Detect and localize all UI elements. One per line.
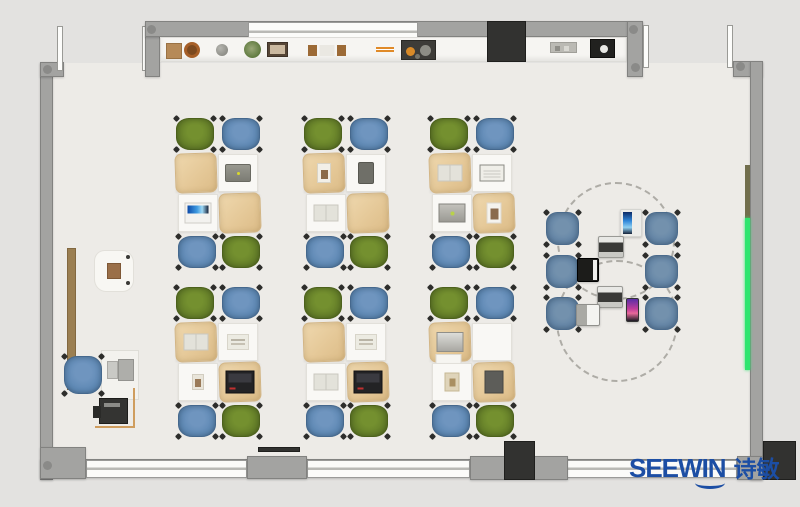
chair-leg <box>340 233 347 240</box>
student-desk <box>178 363 218 401</box>
chair-green <box>176 287 214 319</box>
desk-cover <box>302 321 345 362</box>
wall-right <box>750 61 763 480</box>
chair-leg <box>340 402 347 409</box>
counter-item-trays <box>308 45 346 56</box>
device-laptop-gray <box>598 236 624 258</box>
chair-steel <box>645 297 678 330</box>
chair-steel <box>645 255 678 288</box>
chair-blue <box>306 405 344 437</box>
student-desk <box>306 194 346 232</box>
chair-leg <box>429 402 436 409</box>
desk-cover <box>218 192 261 233</box>
chair-green <box>350 405 388 437</box>
wall-joint <box>43 461 52 470</box>
chair-blue <box>350 118 388 150</box>
student-desk <box>432 194 472 232</box>
chair-leg <box>473 315 480 322</box>
chair-steel <box>645 212 678 245</box>
chair-green <box>430 287 468 319</box>
wall-joint <box>147 25 156 34</box>
open-book-item <box>438 165 463 182</box>
tablet-gray-item <box>225 164 251 182</box>
laptop-blue-item <box>185 203 212 224</box>
student-desk <box>346 154 386 192</box>
chair-leg <box>212 402 219 409</box>
picture-item <box>487 203 502 224</box>
chair-leg <box>473 233 480 240</box>
chair-blue <box>222 118 260 150</box>
student-desk <box>472 323 512 361</box>
laptop-silver-item <box>437 332 464 352</box>
counter-item-toolbox <box>401 40 436 60</box>
wall-joint <box>629 25 638 34</box>
chair-leg <box>473 402 480 409</box>
student-desk <box>178 194 218 232</box>
door-leaf <box>643 25 649 68</box>
chair-leg <box>212 233 219 240</box>
brand-cjk: 诗敏 <box>734 456 780 482</box>
chair-leg <box>347 315 354 322</box>
chair-leg <box>219 233 226 240</box>
chair-steel <box>546 297 579 330</box>
student-desk <box>304 154 344 192</box>
chair-leg <box>347 402 354 409</box>
bag-item <box>445 373 460 392</box>
chair-blue <box>432 236 470 268</box>
chair-green <box>350 236 388 268</box>
wall-board-green <box>745 218 750 370</box>
wall-joint <box>43 65 52 74</box>
desk-cluster <box>304 287 388 437</box>
chair-leg <box>219 146 226 153</box>
papers-item <box>355 334 377 350</box>
chair-leg <box>347 233 354 240</box>
chair-leg <box>303 233 310 240</box>
papers-item <box>227 334 249 350</box>
student-desk <box>176 323 216 361</box>
chair-blue <box>432 405 470 437</box>
wall-board-olive <box>745 165 750 218</box>
counter-item-bars <box>376 47 394 52</box>
chair-leg <box>219 402 226 409</box>
window-bottom-1 <box>86 460 247 478</box>
desk-cluster <box>304 118 388 268</box>
chair-leg <box>466 402 473 409</box>
chair-steel <box>546 212 579 245</box>
chair-green <box>476 236 514 268</box>
chair-green <box>222 405 260 437</box>
counter-item-basket <box>166 42 202 58</box>
floor-plan: SEEWIN诗敏 <box>0 0 800 507</box>
student-desk <box>472 154 512 192</box>
wall-joint <box>736 62 745 71</box>
chair-blue <box>476 118 514 150</box>
student-desk <box>176 154 216 192</box>
laptop-gray-item <box>439 204 466 223</box>
chair-leg <box>466 233 473 240</box>
open-book-item <box>184 334 209 351</box>
book-white-item <box>317 163 331 183</box>
student-desk <box>306 363 346 401</box>
board-bottom <box>258 447 300 452</box>
student-desk <box>430 154 470 192</box>
desk-cluster <box>430 287 514 437</box>
student-desk <box>218 154 258 192</box>
brand-logo: SEEWIN诗敏 <box>629 450 780 484</box>
desk-cluster <box>176 118 260 268</box>
chair-leg <box>303 402 310 409</box>
chair-blue <box>476 287 514 319</box>
printer <box>99 398 128 424</box>
device-laptop-gray <box>597 286 623 308</box>
chair-green <box>222 236 260 268</box>
card-item <box>192 374 204 390</box>
chair-steel <box>546 255 579 288</box>
chair-leg <box>219 315 226 322</box>
wall-joint <box>631 63 640 72</box>
device-tablet-stand <box>620 209 642 237</box>
desk-cluster <box>176 287 260 437</box>
chair-blue <box>178 236 216 268</box>
laptop-dark-item <box>226 371 255 394</box>
student-desk <box>220 363 260 401</box>
device-laptop-white <box>576 304 600 326</box>
student-desk <box>304 323 344 361</box>
open-book-item <box>314 374 339 391</box>
desk-cluster <box>430 118 514 268</box>
wall-segment-bottom-1 <box>247 456 307 479</box>
chair-green <box>476 405 514 437</box>
desk-cover <box>174 152 217 193</box>
counter-item-tray <box>550 42 577 53</box>
chair-blue <box>306 236 344 268</box>
book-dark-item <box>485 371 504 394</box>
counter-item-frame <box>267 42 288 57</box>
student-desk <box>474 363 514 401</box>
chair-leg <box>175 402 182 409</box>
door-leaf <box>57 26 63 71</box>
cabinet-bottom-mid <box>504 441 535 480</box>
student-desk <box>220 194 260 232</box>
student-desk <box>432 363 472 401</box>
laptop-dark-item <box>354 371 383 394</box>
open-book-item <box>314 205 339 222</box>
chair-leg <box>347 146 354 153</box>
chair-blue <box>178 405 216 437</box>
chair-green <box>430 118 468 150</box>
chair-green <box>176 118 214 150</box>
logo-swoosh <box>695 477 725 489</box>
chair-leg <box>175 233 182 240</box>
side-table <box>94 250 134 292</box>
chair-leg <box>429 233 436 240</box>
desk-cover <box>346 192 389 233</box>
chair-leg <box>473 146 480 153</box>
device-laptop-black <box>577 258 599 282</box>
student-desk <box>348 363 388 401</box>
chair-blue <box>350 287 388 319</box>
pillar-top <box>487 21 526 62</box>
student-desk <box>218 323 258 361</box>
counter-item-plant <box>244 41 261 58</box>
chair-blue <box>222 287 260 319</box>
student-desk <box>346 323 386 361</box>
counter-item-sphere <box>216 44 228 56</box>
student-desk <box>474 194 514 232</box>
student-desk <box>348 194 388 232</box>
tablet-dark-item <box>358 162 374 184</box>
chair-green <box>304 118 342 150</box>
student-desk <box>430 323 470 361</box>
chair-green <box>304 287 342 319</box>
wall-left <box>40 62 53 480</box>
window-bottom-2 <box>307 460 470 478</box>
device-tablet-color <box>626 298 639 322</box>
counter-item-device <box>590 39 615 58</box>
notebook-item <box>480 165 505 182</box>
